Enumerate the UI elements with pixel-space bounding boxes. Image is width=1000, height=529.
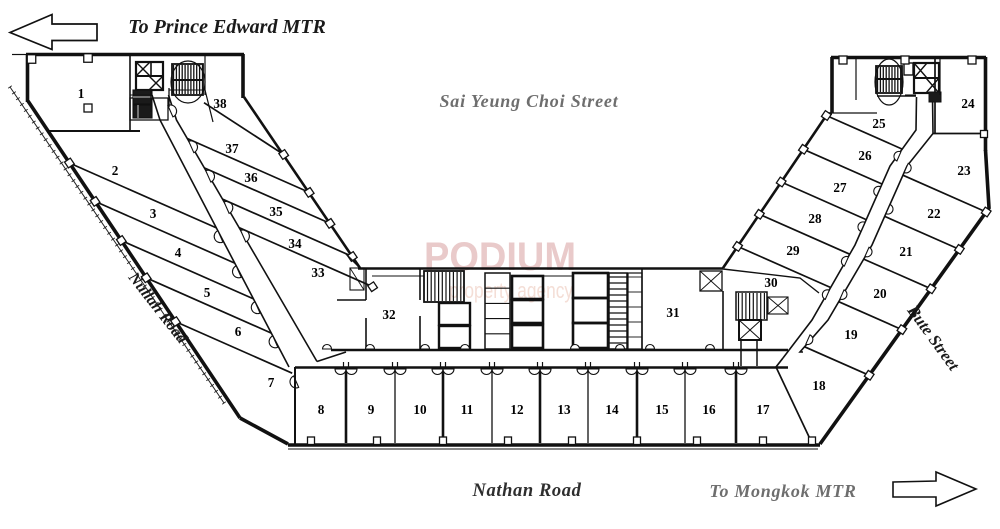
svg-text:4: 4 [175, 245, 182, 260]
svg-text:14: 14 [605, 402, 619, 417]
svg-text:31: 31 [666, 305, 679, 320]
svg-text:18: 18 [812, 378, 826, 393]
svg-text:32: 32 [382, 307, 396, 322]
svg-text:1: 1 [78, 86, 85, 101]
svg-text:11: 11 [461, 402, 473, 417]
svg-text:9: 9 [368, 402, 375, 417]
svg-text:26: 26 [858, 148, 872, 163]
svg-text:Nathan Road: Nathan Road [472, 481, 582, 501]
svg-text:28: 28 [808, 211, 822, 226]
svg-text:35: 35 [269, 204, 283, 219]
svg-text:22: 22 [927, 206, 941, 221]
svg-text:23: 23 [957, 163, 971, 178]
svg-text:To Mongkok MTR: To Mongkok MTR [709, 481, 856, 501]
svg-text:13: 13 [557, 402, 571, 417]
svg-text:12: 12 [510, 402, 524, 417]
svg-text:10: 10 [413, 402, 427, 417]
svg-text:34: 34 [288, 236, 302, 251]
svg-text:27: 27 [833, 180, 847, 195]
svg-text:Sai Yeung Choi Street: Sai Yeung Choi Street [439, 91, 618, 111]
svg-text:2: 2 [112, 163, 119, 178]
svg-text:37: 37 [225, 141, 239, 156]
svg-text:38: 38 [213, 96, 227, 111]
svg-text:29: 29 [786, 243, 800, 258]
svg-text:21: 21 [899, 244, 912, 259]
svg-text:3: 3 [150, 206, 157, 221]
svg-text:15: 15 [655, 402, 669, 417]
svg-text:8: 8 [318, 402, 325, 417]
svg-text:30: 30 [764, 275, 778, 290]
svg-text:33: 33 [311, 265, 325, 280]
svg-text:20: 20 [873, 286, 887, 301]
svg-text:5: 5 [204, 285, 211, 300]
svg-text:To Prince Edward MTR: To Prince Edward MTR [128, 16, 326, 38]
svg-text:24: 24 [961, 96, 975, 111]
svg-text:25: 25 [872, 116, 886, 131]
svg-text:36: 36 [244, 170, 258, 185]
svg-text:17: 17 [756, 402, 770, 417]
svg-text:16: 16 [702, 402, 716, 417]
svg-text:6: 6 [235, 324, 242, 339]
svg-text:7: 7 [268, 375, 275, 390]
svg-text:19: 19 [844, 327, 858, 342]
